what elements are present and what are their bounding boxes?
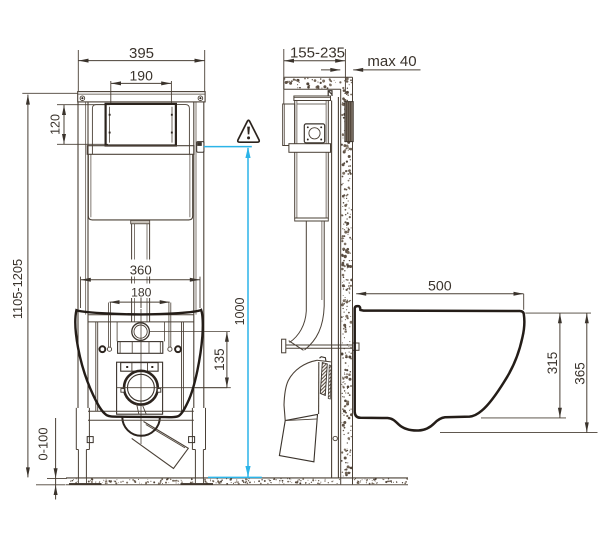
svg-text:max 40: max 40 — [367, 53, 416, 70]
svg-text:0-100: 0-100 — [36, 428, 51, 461]
svg-text:155-235: 155-235 — [290, 45, 345, 62]
svg-text:135: 135 — [212, 348, 227, 371]
svg-text:190: 190 — [130, 68, 154, 84]
svg-text:1000: 1000 — [233, 298, 247, 326]
svg-text:395: 395 — [129, 45, 154, 62]
svg-text:1105-1205: 1105-1205 — [10, 259, 25, 319]
svg-text:360: 360 — [130, 262, 152, 277]
svg-text:120: 120 — [49, 114, 63, 135]
svg-text:500: 500 — [428, 278, 452, 294]
svg-text:180: 180 — [131, 285, 152, 299]
svg-text:315: 315 — [545, 352, 560, 375]
svg-text:365: 365 — [573, 362, 588, 385]
